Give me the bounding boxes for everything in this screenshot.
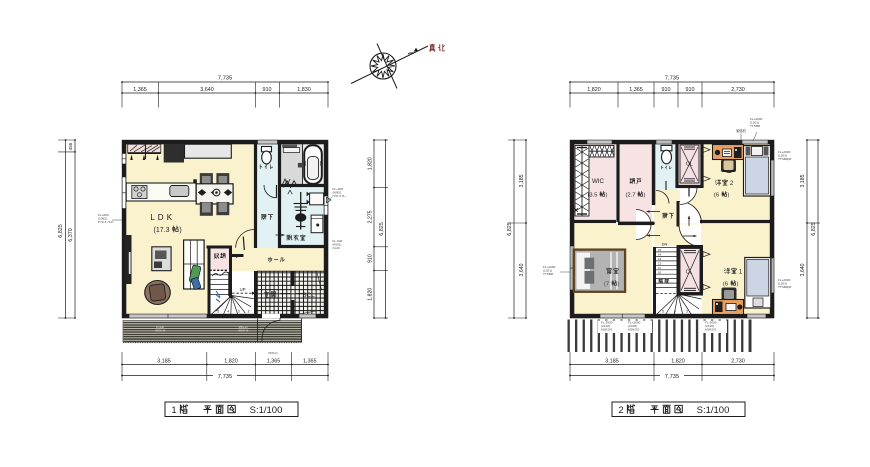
- svg-text:4: 4: [227, 310, 229, 314]
- svg-text:7,735: 7,735: [218, 76, 233, 82]
- svg-text:LV-230: LV-230: [156, 325, 165, 329]
- svg-text:1,365: 1,365: [267, 359, 281, 365]
- svg-text:910: 910: [263, 87, 272, 93]
- svg-text:1,365: 1,365: [303, 359, 317, 365]
- svg-text:(17.3: (17.3: [154, 227, 170, 234]
- svg-text:910: 910: [686, 87, 695, 93]
- svg-text:F120: F120: [333, 246, 340, 250]
- svg-text:5: 5: [662, 310, 664, 314]
- svg-text:14: 14: [658, 253, 662, 257]
- svg-text:勉強机: 勉強机: [736, 128, 746, 133]
- svg-text:1,365: 1,365: [133, 87, 147, 93]
- svg-text:7,735: 7,735: [218, 374, 233, 380]
- svg-text:6,370: 6,370: [68, 228, 74, 242]
- svg-text:(3.5: (3.5: [588, 193, 598, 199]
- svg-text:3,640: 3,640: [519, 263, 525, 276]
- svg-text:UP: UP: [240, 287, 246, 292]
- svg-text:1,820: 1,820: [224, 359, 238, 365]
- svg-text:#MS-D: #MS-D: [268, 351, 278, 355]
- svg-text:11: 11: [658, 266, 661, 270]
- svg-text:1,365: 1,365: [629, 87, 643, 93]
- svg-text:3,185: 3,185: [605, 359, 619, 365]
- svg-text:7,735: 7,735: [665, 76, 680, 82]
- svg-text:3: 3: [686, 310, 688, 314]
- svg-text:3: 3: [238, 310, 240, 314]
- svg-text:L D K: L D K: [150, 213, 172, 222]
- svg-text:): ): [618, 282, 620, 288]
- svg-text:4: 4: [674, 310, 676, 314]
- svg-text:): ): [606, 193, 608, 199]
- svg-text:13: 13: [658, 257, 662, 261]
- svg-text:): ): [728, 193, 730, 199]
- svg-text:455: 455: [68, 142, 73, 150]
- svg-text:1: 1: [171, 405, 176, 416]
- svg-text:12: 12: [658, 262, 662, 266]
- svg-text:7,735: 7,735: [665, 374, 680, 380]
- svg-text:): ): [737, 282, 739, 288]
- svg-text:CL: CL: [686, 162, 693, 168]
- svg-text:1,820: 1,820: [587, 87, 601, 93]
- svg-text:(2.7: (2.7: [626, 193, 636, 199]
- svg-text:1,820: 1,820: [671, 359, 685, 365]
- svg-text:3,640: 3,640: [800, 263, 806, 276]
- svg-text:HKDS-W: HKDS-W: [238, 328, 249, 332]
- svg-text:MSKOS: MSKOS: [601, 328, 612, 332]
- svg-text:6,825: 6,825: [811, 222, 817, 236]
- svg-text:2,275: 2,275: [368, 210, 374, 223]
- svg-text:5: 5: [217, 310, 219, 314]
- svg-text:1,820: 1,820: [368, 157, 374, 170]
- svg-text:3,185: 3,185: [800, 174, 806, 187]
- svg-text:1,830: 1,830: [297, 87, 311, 93]
- svg-text:TTSBR(R: TTSBR(R: [778, 157, 792, 161]
- svg-text:H=0.3 7L-: H=0.3 7L-: [333, 194, 347, 198]
- svg-text:): ): [644, 193, 646, 199]
- svg-text:S:1/100: S:1/100: [697, 405, 730, 416]
- svg-text:HKDS-W: HKDS-W: [155, 328, 166, 332]
- svg-text:1,820: 1,820: [368, 288, 374, 301]
- svg-text:S:1/100: S:1/100: [250, 405, 283, 416]
- svg-text:910: 910: [368, 254, 374, 263]
- svg-text:3,185: 3,185: [157, 359, 171, 365]
- svg-text:(6: (6: [714, 193, 719, 199]
- svg-text:SNS-23: SNS-23: [238, 325, 248, 329]
- svg-text:(7: (7: [604, 282, 609, 288]
- svg-text:15: 15: [658, 248, 662, 252]
- svg-text:MSKOS: MSKOS: [705, 328, 716, 332]
- svg-text:(6: (6: [723, 282, 728, 288]
- svg-text:P=0.3 7L-F: P=0.3 7L-F: [98, 220, 114, 224]
- svg-text:2,730: 2,730: [731, 87, 745, 93]
- svg-text:910: 910: [662, 87, 671, 93]
- svg-text:TTSBR: TTSBR: [543, 272, 554, 276]
- svg-text:6,825: 6,825: [58, 224, 64, 238]
- svg-text:DN: DN: [662, 242, 668, 247]
- svg-text:MSKOS: MSKOS: [628, 328, 639, 332]
- svg-text:2: 2: [248, 310, 250, 314]
- svg-text:10: 10: [658, 270, 662, 274]
- svg-text:6,825: 6,825: [507, 222, 513, 236]
- svg-text:SCL: SCL: [302, 292, 315, 299]
- svg-text:3,185: 3,185: [519, 174, 525, 187]
- svg-text:2,730: 2,730: [731, 359, 745, 365]
- svg-text:TTSBR(R: TTSBR(R: [778, 285, 792, 289]
- svg-text:CL: CL: [686, 270, 693, 276]
- svg-text:2: 2: [618, 405, 623, 416]
- svg-text:WIC: WIC: [592, 178, 605, 185]
- svg-text:3,640: 3,640: [200, 87, 214, 93]
- svg-text:6,825: 6,825: [379, 222, 385, 236]
- svg-text:TTSBR: TTSBR: [750, 124, 761, 128]
- svg-text:): ): [179, 227, 181, 234]
